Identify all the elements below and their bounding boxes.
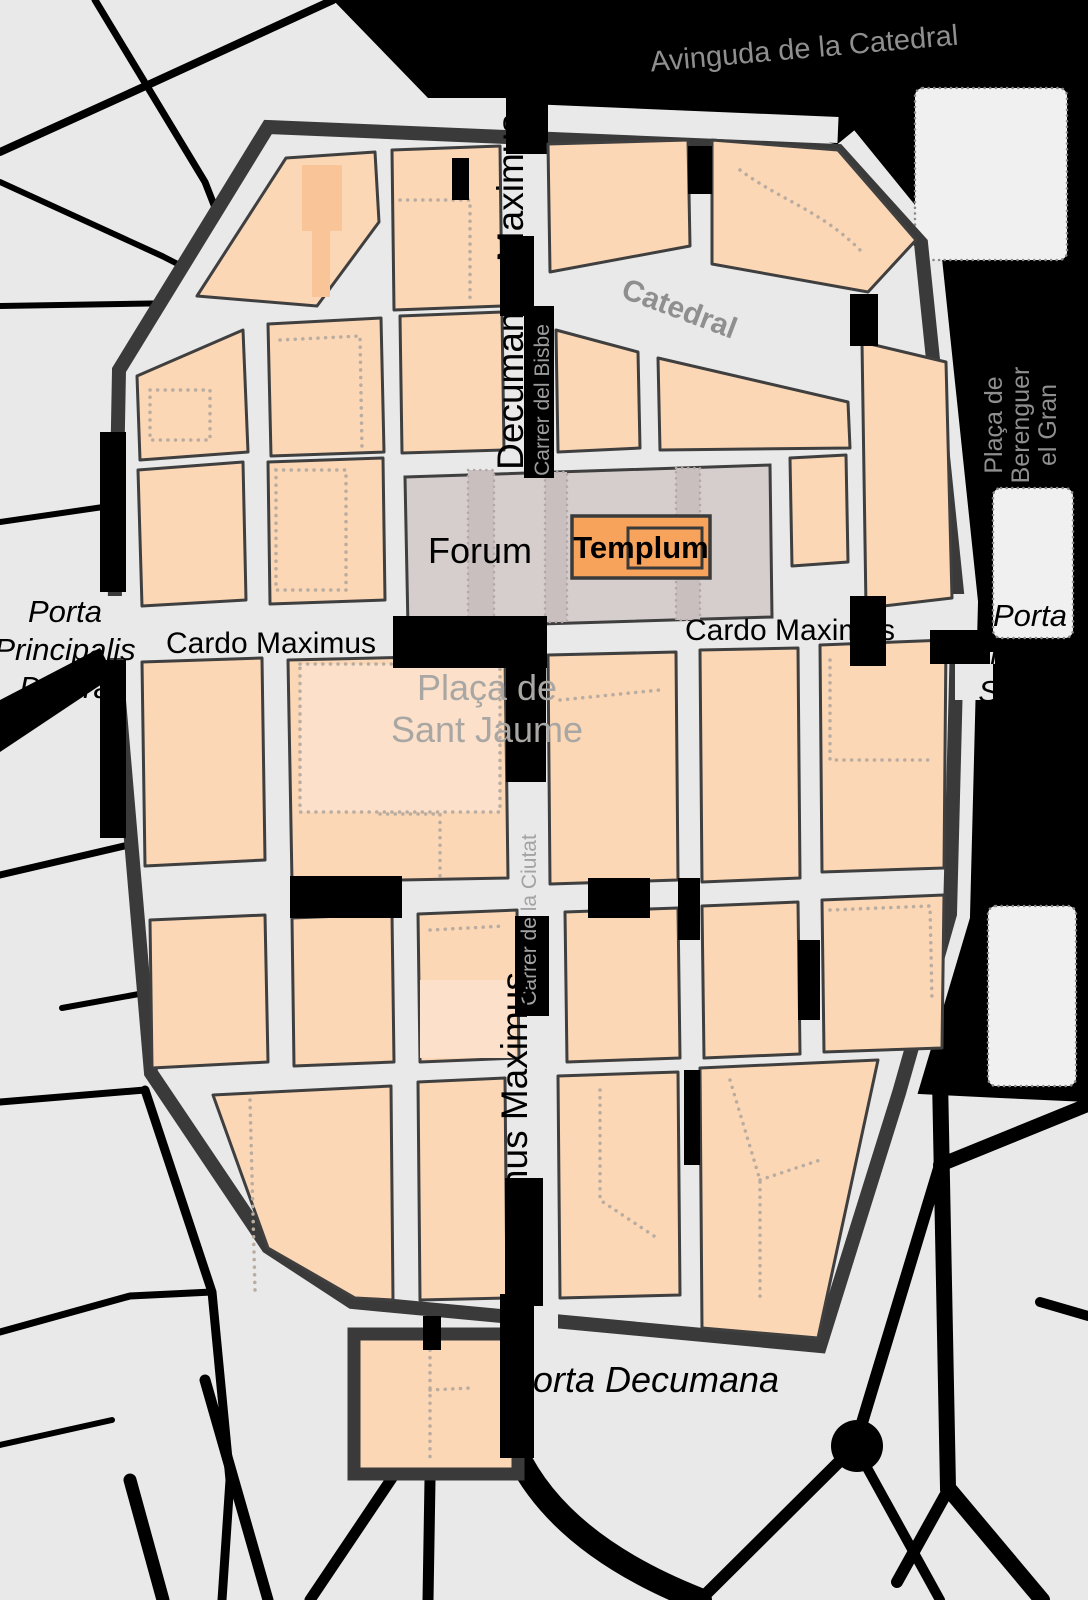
label-decumanus-maximus-bottom: Decumanus Maximus xyxy=(494,972,535,1328)
label-cardo-maximus-left: Cardo Maximus xyxy=(166,627,376,660)
berenguer-line3: el Gran xyxy=(1034,384,1062,466)
label-templum: Templum xyxy=(573,530,709,565)
berenguer-line2: Berenguer xyxy=(1007,367,1035,484)
label-porta-decumana: Porta Decumana xyxy=(509,1359,779,1400)
label-placa-berenguer: Plaça de Berenguer el Gran xyxy=(980,367,1062,484)
berenguer-line1: Plaça de xyxy=(980,376,1008,473)
sant-jaume-line1: Plaça de xyxy=(417,667,557,708)
porta-sinistra-line1: Porta xyxy=(993,598,1067,633)
porta-dextra-line2: Principalis xyxy=(0,632,136,667)
wall-annex-block xyxy=(354,1334,518,1474)
label-forum: Forum xyxy=(428,530,532,571)
map-canvas: Cardo Maximus Porta Principalis Sinistra… xyxy=(0,0,1088,1600)
porta-dextra-line3: Dextra xyxy=(19,670,110,705)
sant-jaume-line2: Sant Jaume xyxy=(391,709,583,750)
barcino-roman-city-map: Cardo Maximus Porta Principalis Sinistra… xyxy=(0,0,1088,1600)
porta-dextra-line1: Porta xyxy=(28,594,102,629)
label-decumanus-maximus-top: Decumanus Maximus xyxy=(490,114,531,470)
label-placa-sant-jaume: Plaça de Sant Jaume xyxy=(391,667,583,750)
label-carrer-del-bisbe: Carrer del Bisbe xyxy=(531,324,554,476)
